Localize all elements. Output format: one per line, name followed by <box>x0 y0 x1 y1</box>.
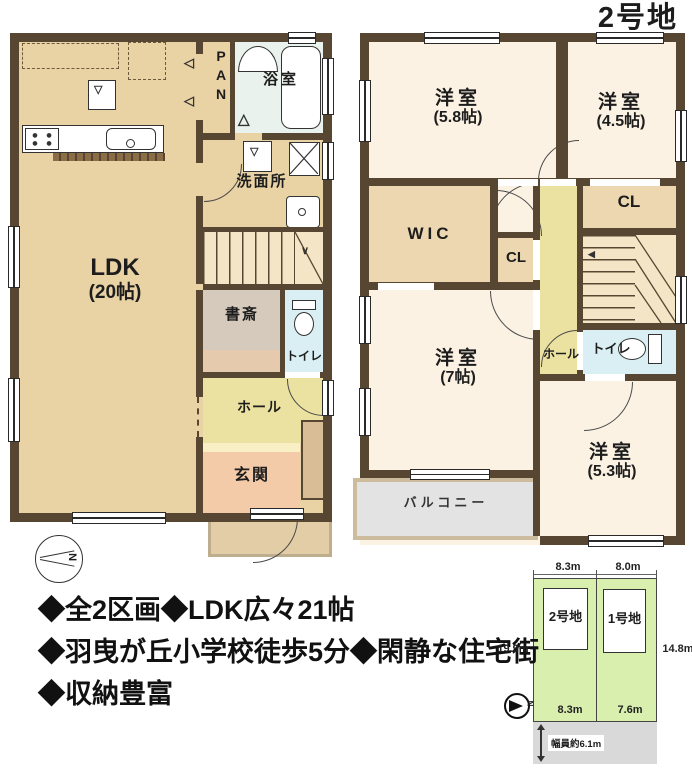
dim-top-right: 8.0m <box>608 561 648 573</box>
wall <box>203 227 323 232</box>
washer-icon <box>289 142 320 176</box>
entrance-door <box>250 508 304 520</box>
door-opening <box>498 179 538 186</box>
window <box>410 469 490 480</box>
window <box>8 226 20 288</box>
window <box>359 388 371 436</box>
road-arrow-head-up <box>537 724 545 730</box>
feature-line-2: ◆羽曳が丘小学校徒歩5分◆閑静な住宅街 <box>38 630 539 669</box>
room-cl-right-label: CL <box>608 192 650 211</box>
wall <box>196 290 203 372</box>
counter-hatch <box>53 153 165 161</box>
room-45-size: (4.5帖) <box>565 113 677 131</box>
room-58-label: 洋室 (5.8帖) <box>398 88 518 127</box>
wall <box>196 133 203 163</box>
bifold-door-mark: ◁ <box>184 56 194 69</box>
room-58-name: 洋室 <box>398 88 518 109</box>
room-58-size: (5.8帖) <box>398 109 518 127</box>
road-arrow-head-down <box>537 756 545 762</box>
door-opening <box>285 372 320 378</box>
wall <box>196 437 203 452</box>
room-7-name: 洋室 <box>398 348 518 369</box>
room-cl-mid-label: CL <box>497 250 535 267</box>
closet-opening <box>378 283 434 290</box>
wall <box>280 290 285 372</box>
door-opening <box>540 179 576 186</box>
window <box>322 142 334 180</box>
window <box>8 378 20 442</box>
stairs-arrow-icon: ∨ <box>301 246 309 257</box>
page-title: 2号地 <box>590 2 686 34</box>
bifold-door-mark: ◁ <box>184 94 194 107</box>
site-lot2-label: 2号地 <box>544 610 587 625</box>
wall <box>493 232 540 238</box>
room-balcony-label: バルコニー <box>382 496 510 511</box>
feature-line-1: ◆全2区画◆LDK広々21帖 <box>38 588 355 627</box>
room-ldk-label: LDK (20帖) <box>55 255 175 303</box>
window <box>675 276 687 324</box>
refrigerator-mark: ▽ <box>94 85 102 96</box>
cabinet-dashed <box>128 42 166 80</box>
room-toilet-1f-label: トイレ <box>286 350 322 363</box>
dim-bottom-right: 7.6m <box>610 704 650 716</box>
dim-tick <box>596 570 597 578</box>
dim-left: 19.9m <box>494 643 532 655</box>
door-opening <box>533 290 540 330</box>
dim-bottom-left: 8.3m <box>550 704 590 716</box>
wall <box>196 452 203 513</box>
room-53-label: 洋室 (5.3帖) <box>552 442 672 481</box>
laundry-box-mark: ▽ <box>250 147 258 158</box>
ldk-size: (20帖) <box>55 282 175 303</box>
road-arrow-line <box>540 727 542 759</box>
wall-opening-dashed <box>197 397 201 437</box>
door-opening <box>585 374 625 381</box>
wall <box>262 133 323 140</box>
room-45-label: 洋室 (4.5帖) <box>565 92 677 131</box>
room-wic-label: WIC <box>390 224 470 243</box>
site-lot1-label: 1号地 <box>603 612 646 627</box>
dim-tick <box>656 570 657 578</box>
faucet-icon <box>126 139 135 148</box>
floorplan-page: ▽ △ ▽ ◁ ◁ ∨ N LDK (20帖) PAN 浴室 洗面所 書斎 トイ… <box>0 0 692 768</box>
site-compass-n-label: N <box>524 701 533 707</box>
closet-opening <box>590 179 660 186</box>
room-hall-2f-label: ホール <box>536 348 586 361</box>
dim-right: 14.8m <box>659 643 692 655</box>
room-7-size: (7帖) <box>398 369 518 387</box>
dim-tick <box>533 570 534 578</box>
toilet-tank-icon <box>648 334 662 364</box>
window <box>359 296 371 344</box>
room-toilet-2f-label: トイレ <box>588 342 634 357</box>
ldk-name: LDK <box>55 255 175 282</box>
room-study-label: 書斎 <box>206 307 278 324</box>
window <box>322 58 334 115</box>
room-washroom-label: 洗面所 <box>206 174 318 191</box>
window <box>72 512 166 524</box>
wall <box>230 42 235 133</box>
toilet-tank-icon <box>292 300 316 310</box>
site-lot-divider <box>596 578 597 722</box>
wall <box>196 42 203 54</box>
room-7-label: 洋室 (7帖) <box>398 348 518 387</box>
window <box>424 32 500 44</box>
wall <box>196 232 203 284</box>
room-45-name: 洋室 <box>565 92 677 113</box>
site-dim-line-top <box>533 574 657 575</box>
wall <box>583 323 676 330</box>
dim-top-left: 8.3m <box>548 561 588 573</box>
road-width-label: 幅員約6.1m <box>548 735 604 751</box>
compass-n-label: N <box>66 553 78 561</box>
bath-door-mark: △ <box>238 112 250 127</box>
site-compass-needle <box>509 700 523 712</box>
room-bath-label: 浴室 <box>243 72 319 89</box>
wall <box>196 372 203 397</box>
room-pantry-label: PAN <box>206 48 228 105</box>
wall <box>196 120 203 133</box>
feature-line-3: ◆収納豊富 <box>38 672 173 711</box>
stairs-floor2 <box>583 235 676 323</box>
wall <box>203 284 323 290</box>
window <box>288 32 316 44</box>
stair-fan <box>583 235 676 323</box>
room-hall-1f-label: ホール <box>212 400 307 416</box>
vanity-faucet-icon <box>298 208 306 216</box>
window <box>322 380 334 416</box>
toilet-bowl-icon <box>294 312 314 336</box>
cupboard-dashed <box>22 43 119 69</box>
wall <box>583 228 676 235</box>
window <box>359 80 371 142</box>
wall <box>196 196 203 232</box>
room-53-name: 洋室 <box>552 442 672 463</box>
stairs-arrow-icon: ◀ <box>588 250 595 259</box>
wall <box>203 133 235 140</box>
stove-icon <box>25 128 59 150</box>
room-53-size: (5.3帖) <box>552 463 672 481</box>
room-entrance-label: 玄関 <box>210 467 294 485</box>
window <box>588 535 664 547</box>
